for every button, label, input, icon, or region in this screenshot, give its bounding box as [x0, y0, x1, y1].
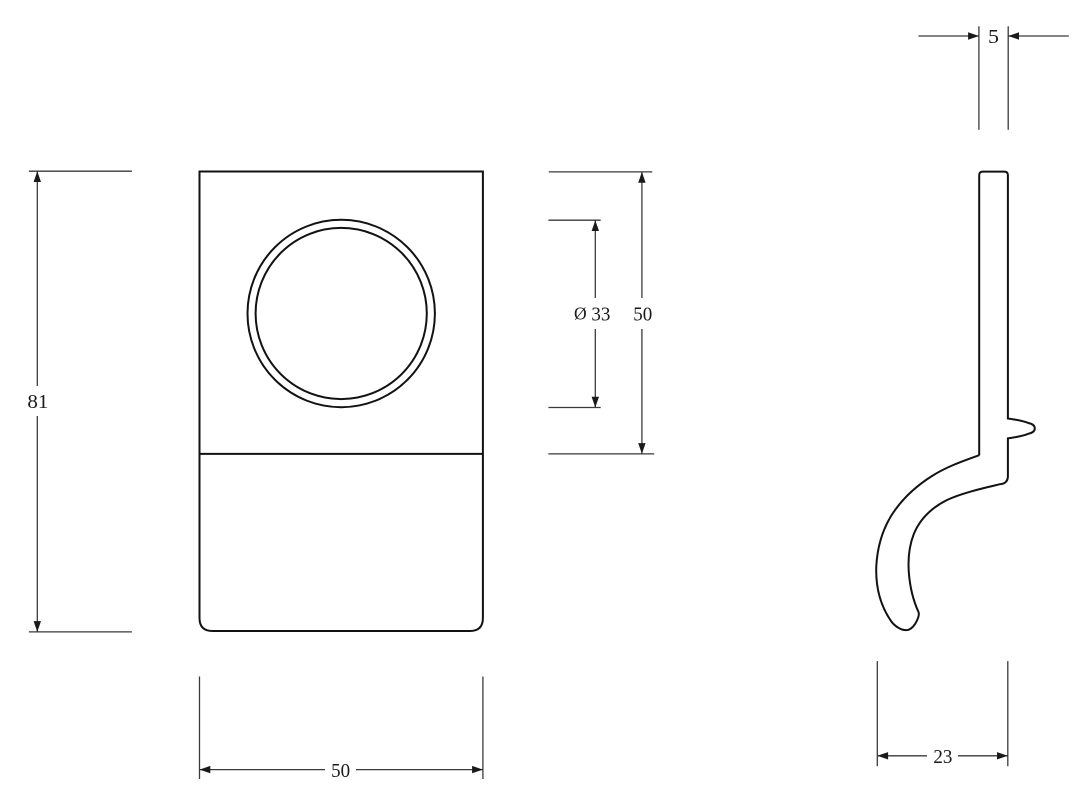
- svg-text:Ø: Ø: [574, 304, 587, 324]
- svg-text:50: 50: [633, 303, 652, 325]
- svg-text:23: 23: [933, 746, 952, 768]
- svg-text:5: 5: [988, 26, 999, 48]
- svg-text:33: 33: [591, 303, 610, 325]
- svg-text:50: 50: [331, 760, 350, 782]
- svg-text:81: 81: [27, 391, 48, 413]
